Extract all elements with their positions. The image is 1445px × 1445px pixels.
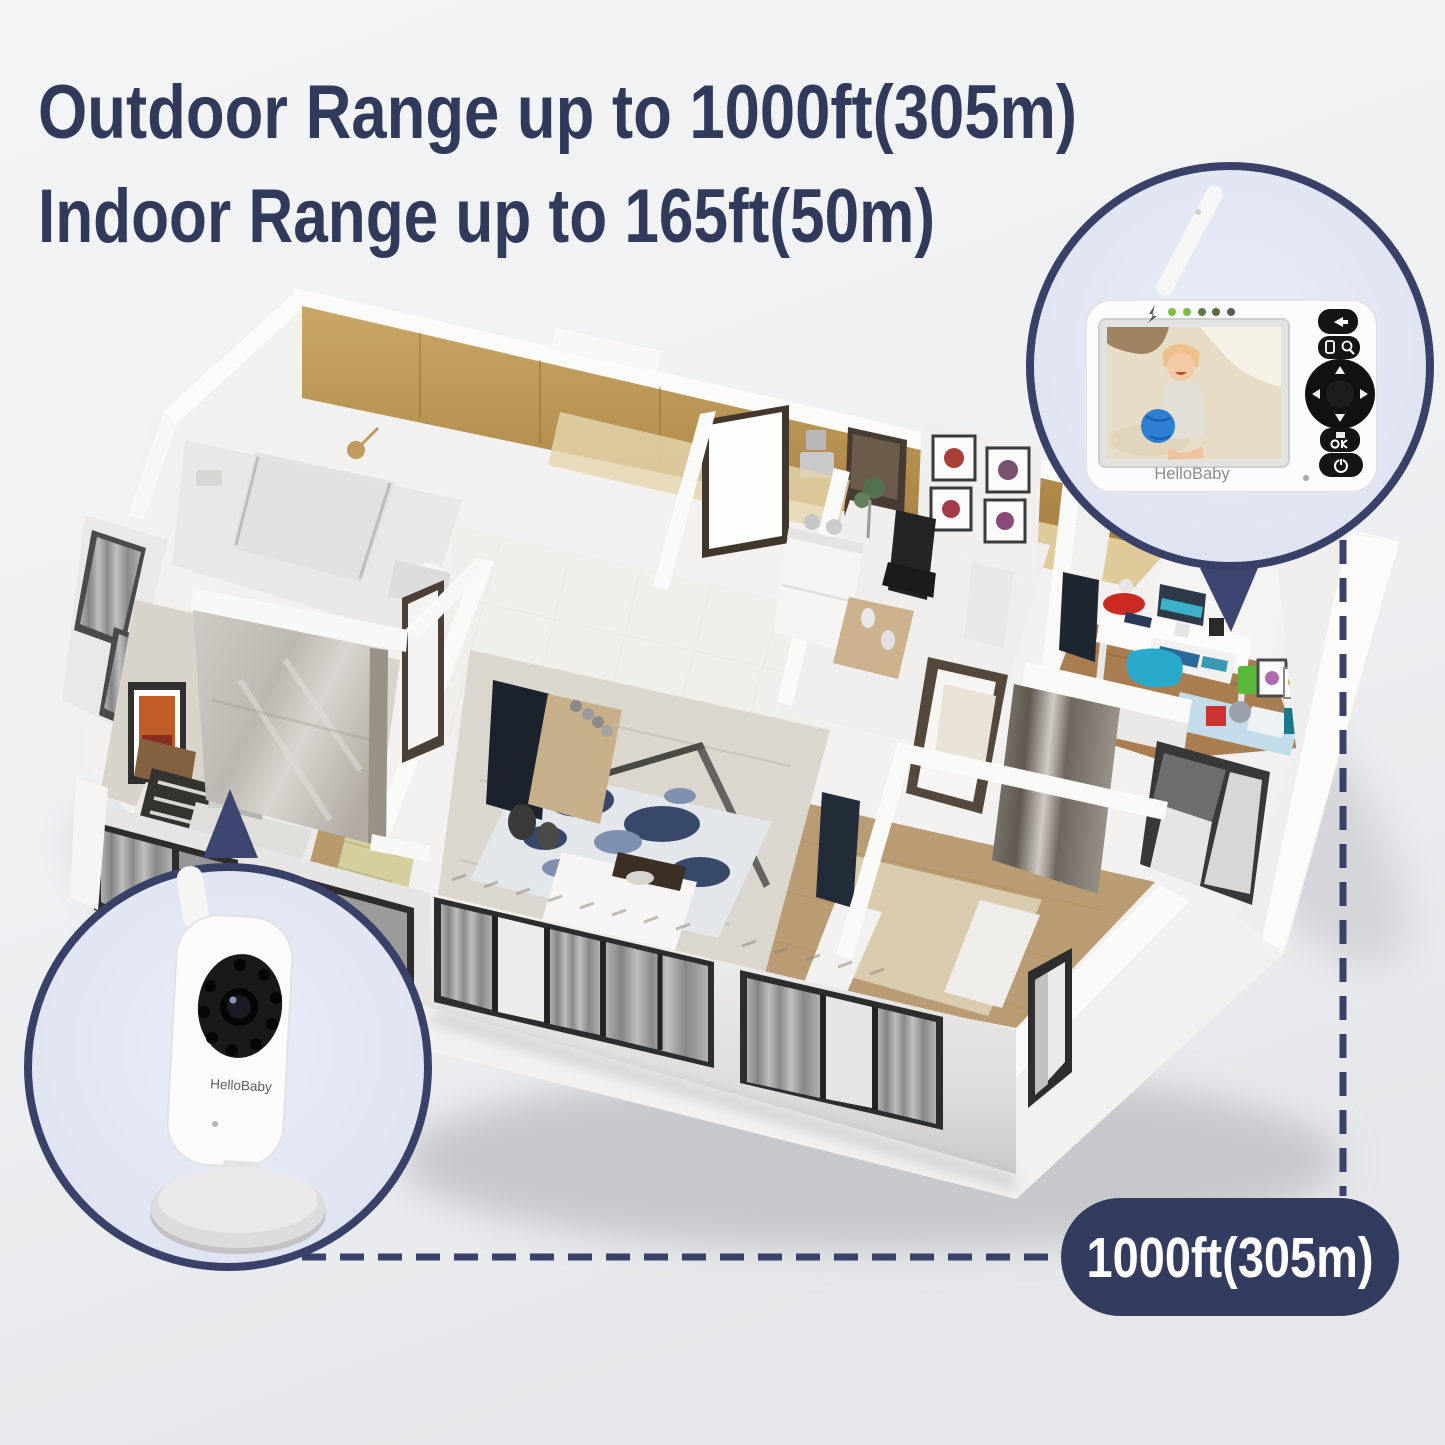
svg-text:1000ft(305m): 1000ft(305m) [1087,1226,1374,1290]
svg-text:HelloBaby: HelloBaby [1154,465,1230,483]
svg-text:Indoor Range up to 165ft(50m): Indoor Range up to 165ft(50m) [38,174,935,259]
svg-text:Outdoor Range up to 1000ft(305: Outdoor Range up to 1000ft(305m) [38,70,1077,155]
